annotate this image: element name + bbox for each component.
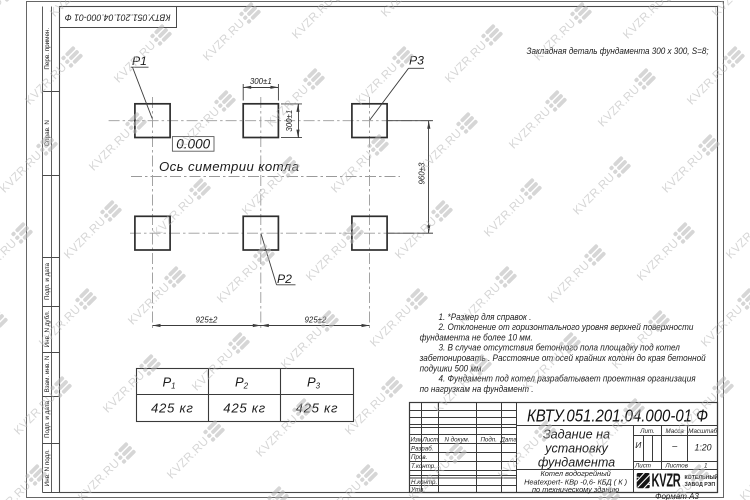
- svg-text:Р2: Р2: [235, 375, 249, 391]
- svg-text:KVZR.RU: KVZR.RU: [318, 479, 365, 500]
- svg-text:KVZR.RU: KVZR.RU: [0, 237, 19, 284]
- svg-text:KVZR.RU: KVZR.RU: [190, 347, 237, 394]
- svg-text:KVZR.RU: KVZR.RU: [532, 17, 579, 64]
- svg-text:KVZR.RU: KVZR.RU: [87, 127, 134, 174]
- svg-text:KVZR.RU: KVZR.RU: [635, 237, 682, 284]
- svg-text:Р2: Р2: [277, 272, 292, 286]
- svg-text:425 кг: 425 кг: [151, 401, 194, 416]
- svg-text:KVZR.RU: KVZR.RU: [660, 149, 707, 196]
- svg-text:Перв. примен.: Перв. примен.: [44, 28, 51, 70]
- svg-text:KVZR.RU: KVZR.RU: [165, 435, 212, 482]
- svg-text:KVZR.RU: KVZR.RU: [279, 325, 326, 372]
- svg-text:KVZR.RU: KVZR.RU: [596, 83, 643, 130]
- svg-text:Подп.: Подп.: [480, 436, 496, 443]
- svg-text:фундамента не более 10 мм.: фундамента не более 10 мм.: [420, 332, 533, 342]
- svg-text:925±2: 925±2: [196, 316, 218, 325]
- svg-text:Подп. и дата: Подп. и дата: [44, 262, 51, 300]
- svg-text:KVZR.RU: KVZR.RU: [0, 149, 44, 196]
- svg-text:KVZR.RU: KVZR.RU: [354, 61, 401, 108]
- svg-text:–: –: [671, 441, 678, 451]
- svg-text:KVZR.RU: KVZR.RU: [112, 39, 159, 86]
- svg-text:1: 1: [704, 462, 707, 469]
- svg-text:N докум.: N докум.: [444, 436, 469, 443]
- svg-text:KVZR.RU: KVZR.RU: [418, 127, 465, 174]
- svg-text:1:20: 1:20: [694, 443, 711, 453]
- svg-text:фундамента: фундамента: [538, 456, 615, 470]
- svg-text:И: И: [635, 440, 642, 450]
- svg-text:Р3: Р3: [307, 375, 321, 391]
- svg-text:KVZR.RU: KVZR.RU: [507, 105, 554, 152]
- svg-text:KVZR.RU: KVZR.RU: [62, 215, 109, 262]
- svg-text:KVZR.RU: KVZR.RU: [101, 369, 148, 416]
- svg-text:KVZR.RU: KVZR.RU: [571, 171, 618, 218]
- svg-text:KVZR.RU: KVZR.RU: [76, 457, 123, 500]
- svg-text:KVZR.RU: KVZR.RU: [215, 259, 262, 306]
- svg-text:Лист: Лист: [422, 436, 439, 443]
- svg-text:Р1: Р1: [162, 375, 175, 391]
- svg-text:по нагрузкам на фундамент .: по нагрузкам на фундамент .: [420, 384, 534, 394]
- svg-text:KVZR.RU: KVZR.RU: [482, 193, 529, 240]
- svg-text:Листов: Листов: [664, 462, 688, 469]
- svg-text:KVZR.RU: KVZR.RU: [201, 17, 248, 64]
- svg-text:KVZR.RU: KVZR.RU: [546, 259, 593, 306]
- svg-text:КВТУ.051.201.04.000-01 Ф: КВТУ.051.201.04.000-01 Ф: [65, 12, 171, 22]
- svg-text:KVZR.RU: KVZR.RU: [0, 479, 33, 500]
- svg-text:KVZR.RU: KVZR.RU: [368, 303, 415, 350]
- svg-text:KVZR.RU: KVZR.RU: [699, 303, 746, 350]
- svg-text:KVZR.RU: KVZR.RU: [304, 237, 351, 284]
- svg-text:KVZR.RU: KVZR.RU: [240, 171, 287, 218]
- svg-text:подушки 500 мм.: подушки 500 мм.: [420, 363, 484, 373]
- svg-text:425 кг: 425 кг: [223, 401, 266, 416]
- svg-text:KVZR.RU: KVZR.RU: [254, 413, 301, 460]
- svg-text:Инв. N подл.: Инв. N подл.: [44, 449, 51, 486]
- svg-text:Лист: Лист: [634, 462, 651, 469]
- svg-text:KVZR.RU: KVZR.RU: [329, 149, 376, 196]
- svg-text:Взам. инв. N: Взам. инв. N: [44, 355, 51, 392]
- svg-text:Пров.: Пров.: [411, 454, 427, 461]
- svg-text:KVZR.RU: KVZR.RU: [738, 457, 750, 500]
- svg-text:KVZR.RU: KVZR.RU: [685, 61, 732, 108]
- svg-text:KVZR.RU: KVZR.RU: [0, 0, 5, 41]
- svg-text:KVZR.RU: KVZR.RU: [393, 215, 440, 262]
- svg-text:KVZR.RU: KVZR.RU: [724, 215, 750, 262]
- svg-text:KVZR.RU: KVZR.RU: [343, 391, 390, 438]
- svg-text:KVZR.RU: KVZR.RU: [443, 39, 490, 86]
- svg-text:1. *Размер для справок .: 1. *Размер для справок .: [439, 311, 532, 321]
- svg-text:Лит.: Лит.: [639, 428, 655, 435]
- svg-text:KVZR.RU: KVZR.RU: [126, 281, 173, 328]
- svg-text:KVZR.RU: KVZR.RU: [710, 0, 750, 19]
- svg-text:Дата: Дата: [500, 436, 518, 443]
- svg-text:Масштаб: Масштаб: [688, 428, 717, 435]
- svg-text:KVZR.RU: KVZR.RU: [379, 0, 426, 19]
- svg-text:Разраб.: Разраб.: [411, 445, 433, 452]
- svg-text:300±1: 300±1: [250, 77, 272, 86]
